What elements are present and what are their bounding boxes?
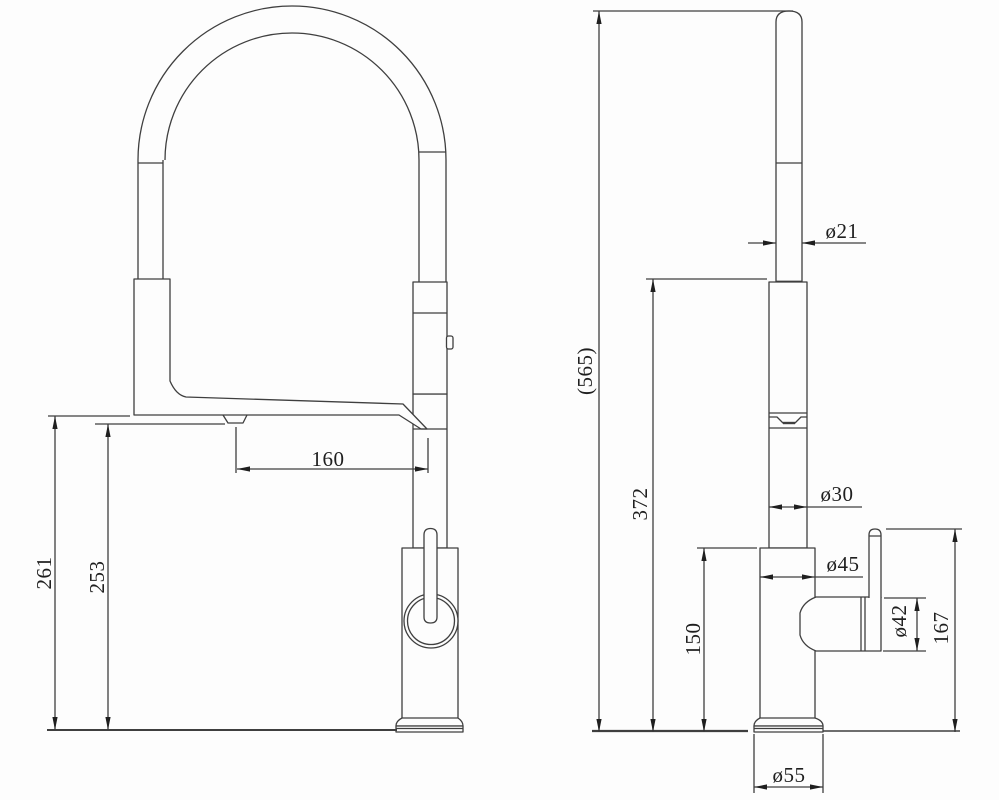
dim-overall-height: (565) <box>573 347 597 395</box>
dim-handle-diameter: ø42 <box>887 605 911 638</box>
dim-head-height: 372 <box>628 488 652 521</box>
front-base-flare <box>396 718 463 726</box>
dim-spout-reach: 160 <box>312 447 345 471</box>
dim-column-diameter: ø30 <box>821 482 854 506</box>
aerator-nozzle <box>223 415 247 423</box>
side-base-flare <box>754 718 823 726</box>
spout-arm <box>134 279 427 429</box>
spout-arch-outer <box>138 6 446 160</box>
side-handle-rod <box>869 529 881 598</box>
dim-body-diameter: ø45 <box>827 552 860 576</box>
dim-height-to-spout: 261 <box>32 557 56 590</box>
side-handle-body <box>800 597 881 651</box>
side-hose <box>776 11 802 282</box>
handle-lever <box>424 529 437 624</box>
spout-arch-inner <box>165 33 419 160</box>
dim-height-to-aerator: 253 <box>85 561 109 594</box>
right-tube <box>419 152 446 282</box>
dim-base-diameter: ø55 <box>773 763 806 787</box>
spray-head-block <box>413 282 447 394</box>
front-view-drawing <box>47 6 463 732</box>
front-column <box>413 394 447 548</box>
left-tube <box>138 160 163 279</box>
dim-hose-diameter: ø21 <box>826 219 859 243</box>
faucet-technical-drawing: 261 253 160 (565) 372 150 ø21 ø30 ø45 ø4… <box>0 0 999 800</box>
dim-handle-height: 167 <box>929 612 953 645</box>
side-view-drawing <box>592 11 962 793</box>
dim-body-height: 150 <box>681 623 705 656</box>
spray-head-button <box>447 336 454 349</box>
